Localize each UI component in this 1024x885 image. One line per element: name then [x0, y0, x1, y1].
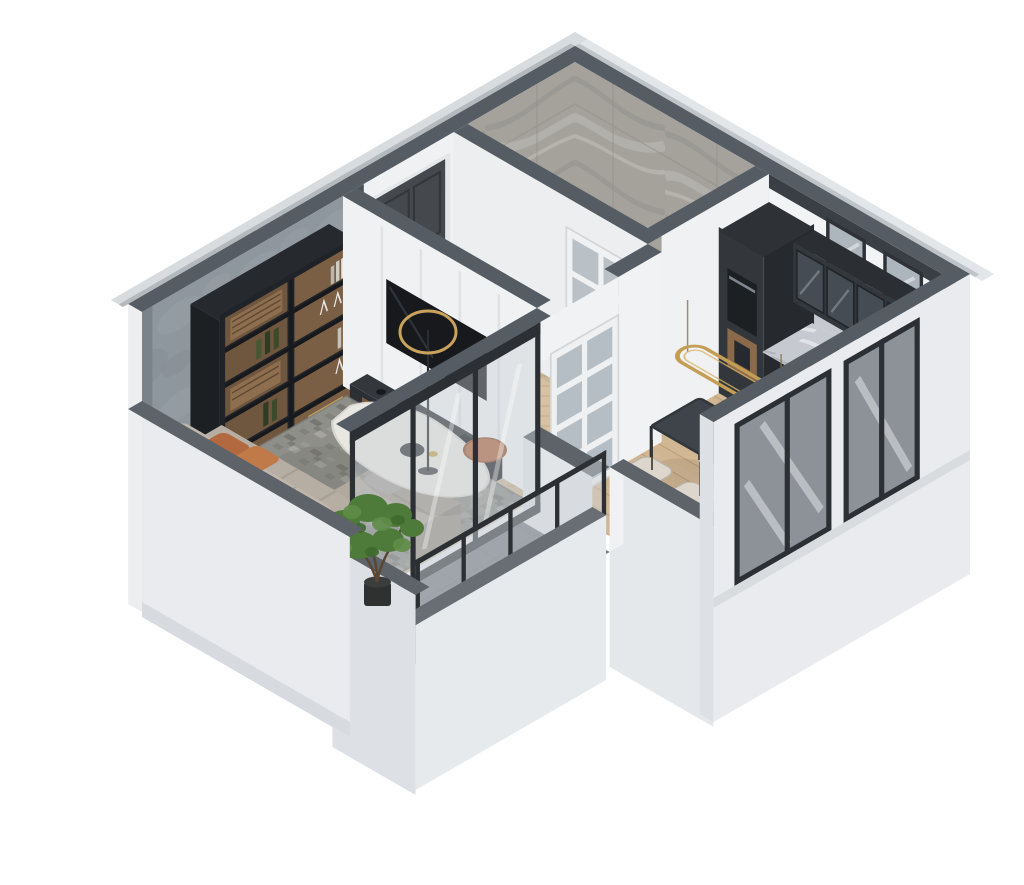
floor-plan-render: Isometric 3D cutaway floor plan render o…: [0, 0, 1024, 885]
floor-plan-stage: Isometric 3D cutaway floor plan render o…: [0, 0, 1024, 885]
